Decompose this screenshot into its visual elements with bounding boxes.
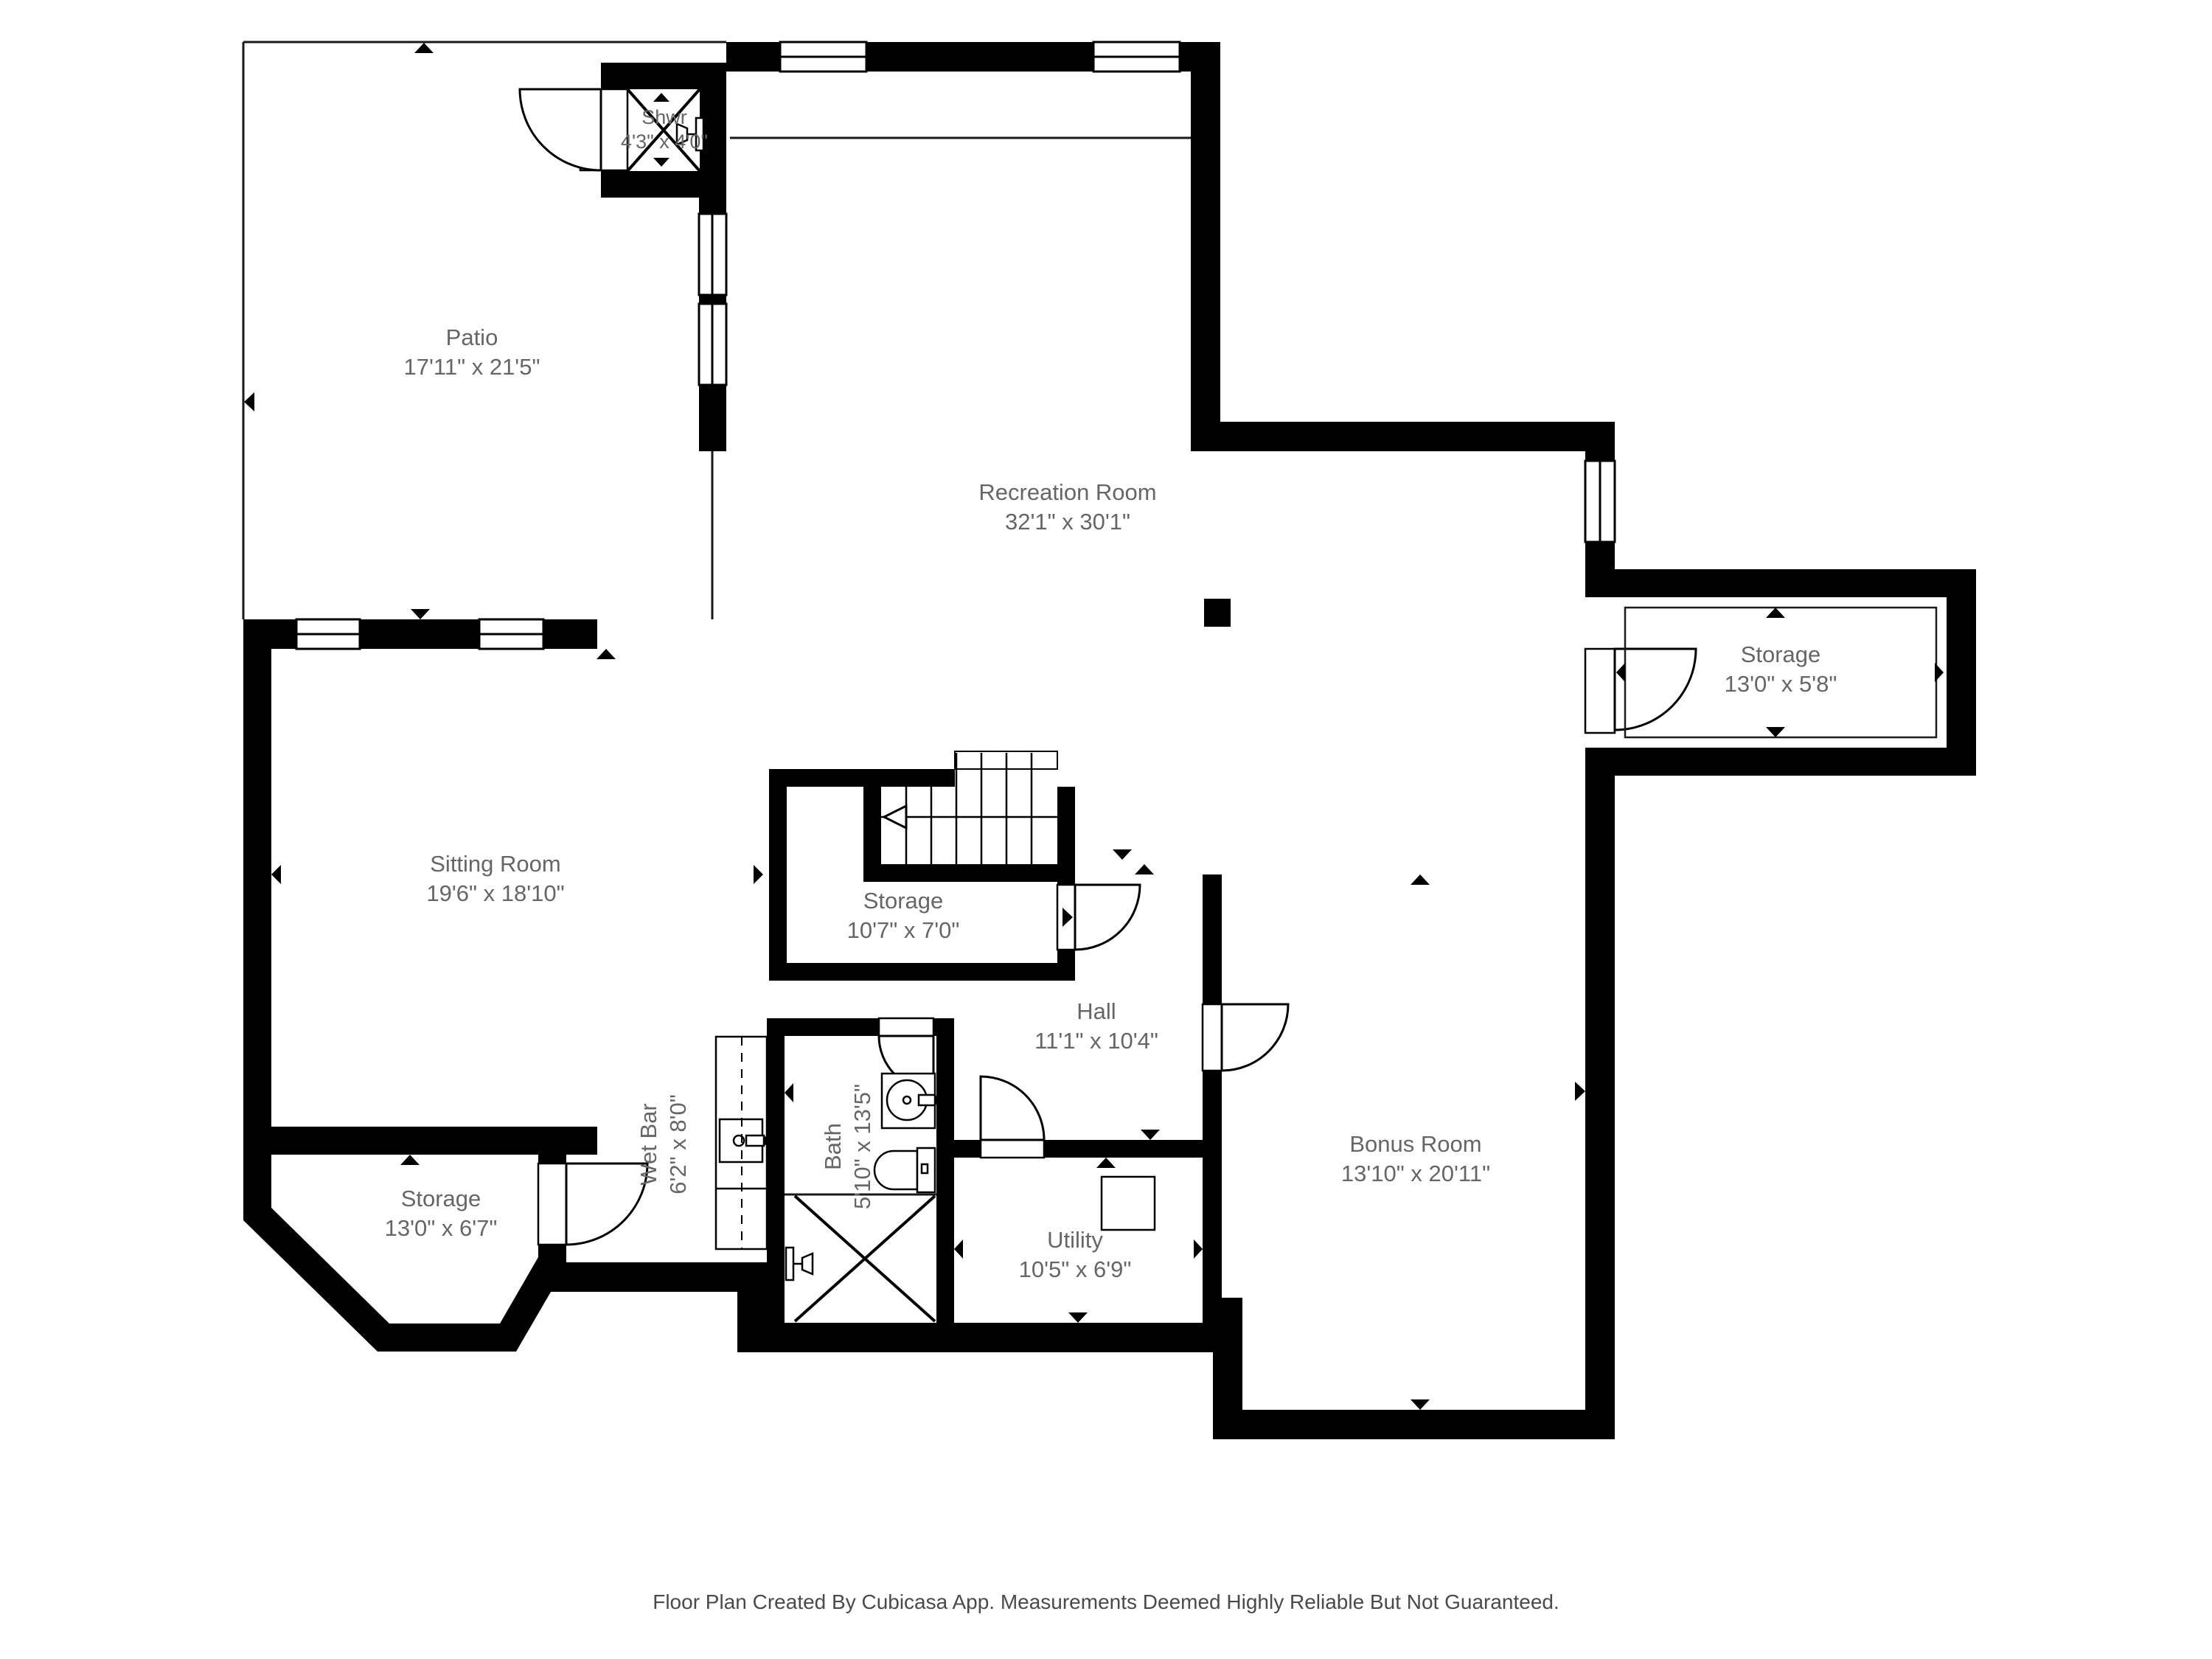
arrow-down-icon bbox=[411, 609, 430, 619]
door-bonus bbox=[1203, 1004, 1288, 1071]
wall-sitting-left bbox=[243, 619, 271, 1127]
wall-storage-mid-left bbox=[769, 769, 787, 981]
room-name: Hall bbox=[1034, 997, 1158, 1026]
room-label-patio: Patio 17'11" x 21'5" bbox=[404, 323, 540, 382]
room-dims: 4'3" x 4'0" bbox=[621, 130, 708, 154]
floor-plan: Patio 17'11" x 21'5" Shwr 4'3" x 4'0" Re… bbox=[0, 0, 2212, 1659]
wall-bonus-bottom bbox=[1213, 1410, 1615, 1439]
room-label-storage-mid: Storage 10'7" x 7'0" bbox=[847, 886, 960, 945]
room-label-storage-left: Storage 13'0" x 6'7" bbox=[385, 1184, 498, 1243]
room-name: Sitting Room bbox=[426, 849, 564, 879]
wall-bath-left bbox=[767, 1018, 785, 1323]
wall-storage-mid-top bbox=[769, 769, 955, 787]
doors bbox=[520, 89, 1696, 1245]
room-dims: 6'2" x 8'0" bbox=[664, 1094, 693, 1194]
wall-right-lower bbox=[1585, 776, 1615, 1439]
arrow-up-icon bbox=[1766, 608, 1785, 618]
wall-upper-right bbox=[1191, 422, 1615, 451]
arrow-up-icon bbox=[653, 93, 669, 102]
room-name: Recreation Room bbox=[978, 478, 1156, 507]
shower-head-bath-icon bbox=[786, 1248, 813, 1280]
wall-wetbar-bottom bbox=[538, 1262, 785, 1292]
room-dims: 32'1" x 30'1" bbox=[978, 507, 1156, 537]
window-rec-top-2 bbox=[1093, 42, 1180, 72]
arrow-left-icon bbox=[271, 865, 281, 884]
room-label-sitting: Sitting Room 19'6" x 18'10" bbox=[426, 849, 564, 908]
bath-shower-x-icon bbox=[795, 1196, 935, 1321]
arrow-down-icon bbox=[1141, 1130, 1160, 1140]
room-name: Utility bbox=[1019, 1225, 1132, 1255]
wall-storage-right-right bbox=[1947, 569, 1976, 776]
arrow-right-icon bbox=[1194, 1239, 1203, 1259]
room-dims: 10'7" x 7'0" bbox=[847, 916, 960, 945]
arrow-left-icon bbox=[954, 1239, 963, 1259]
room-dims: 19'6" x 18'10" bbox=[426, 879, 564, 908]
room-name: Shwr bbox=[621, 105, 708, 130]
wall-hall-bonus bbox=[1203, 874, 1222, 1326]
room-label-recreation: Recreation Room 32'1" x 30'1" bbox=[978, 478, 1156, 537]
column bbox=[1204, 599, 1231, 627]
window-right-wall bbox=[1585, 461, 1615, 542]
arrow-up-icon bbox=[1411, 874, 1430, 885]
arrow-down-icon bbox=[1766, 727, 1785, 737]
window-rec-top-1 bbox=[780, 42, 866, 72]
room-name: Bonus Room bbox=[1341, 1130, 1490, 1159]
window-sitting-1 bbox=[296, 619, 360, 649]
arrow-down-icon bbox=[1068, 1312, 1088, 1323]
room-name: Bath bbox=[818, 1084, 848, 1209]
room-name: Storage bbox=[385, 1184, 498, 1214]
door-utility bbox=[981, 1077, 1044, 1158]
room-dims: 13'0" x 6'7" bbox=[385, 1214, 498, 1243]
window-patio-right-1 bbox=[699, 214, 726, 295]
stairs bbox=[881, 751, 1057, 864]
wall-stair-bottom bbox=[863, 864, 1075, 882]
stair-arrow-icon bbox=[884, 806, 906, 828]
room-name: Storage bbox=[1725, 640, 1837, 669]
arrow-right-icon bbox=[1575, 1082, 1585, 1101]
wall-bath-right bbox=[936, 1018, 954, 1323]
wall-rec-right bbox=[1191, 42, 1220, 451]
arrow-up-icon bbox=[1096, 1158, 1116, 1168]
arrow-down-icon bbox=[653, 158, 669, 167]
door-wet-bar bbox=[538, 1164, 647, 1245]
room-label-shower: Shwr 4'3" x 4'0" bbox=[621, 105, 708, 154]
arrow-right-icon bbox=[1935, 663, 1944, 682]
sink-icon bbox=[882, 1074, 942, 1128]
arrow-left-icon bbox=[244, 392, 254, 411]
wall-hall-bottom bbox=[936, 1140, 1222, 1158]
water-heater-icon bbox=[1102, 1177, 1155, 1230]
door-storage-right bbox=[1585, 649, 1696, 733]
arrow-down-icon bbox=[1113, 849, 1132, 860]
room-name: Wet Bar bbox=[634, 1094, 664, 1194]
arrow-down-icon bbox=[1411, 1399, 1430, 1410]
room-label-hall: Hall 11'1" x 10'4" bbox=[1034, 997, 1158, 1056]
arrow-right-icon bbox=[754, 865, 763, 884]
wall-storage-right-top bbox=[1585, 569, 1976, 597]
room-dims: 13'10" x 20'11" bbox=[1341, 1159, 1490, 1189]
toilet-icon bbox=[874, 1148, 935, 1192]
room-dims: 5'10" x 13'5" bbox=[848, 1084, 877, 1209]
footer-disclaimer: Floor Plan Created By Cubicasa App. Meas… bbox=[653, 1590, 1559, 1614]
room-label-wet-bar: Wet Bar 6'2" x 8'0" bbox=[634, 1094, 693, 1194]
wall-storage-left-top-stub bbox=[566, 1127, 597, 1155]
room-dims: 13'0" x 5'8" bbox=[1725, 669, 1837, 699]
arrow-up-icon bbox=[414, 43, 434, 53]
floor-plan-drawing bbox=[0, 0, 2212, 1659]
window-sitting-2 bbox=[479, 619, 543, 649]
door-shower-top bbox=[520, 89, 627, 170]
room-dims: 11'1" x 10'4" bbox=[1034, 1026, 1158, 1056]
room-label-utility: Utility 10'5" x 6'9" bbox=[1019, 1225, 1132, 1284]
wall-storage-right-bottom bbox=[1585, 748, 1976, 776]
room-dims: 17'11" x 21'5" bbox=[404, 352, 540, 382]
room-label-bath: Bath 5'10" x 13'5" bbox=[818, 1084, 877, 1209]
arrow-left-icon bbox=[785, 1083, 793, 1102]
window-patio-right-2 bbox=[699, 304, 726, 385]
room-label-bonus: Bonus Room 13'10" x 20'11" bbox=[1341, 1130, 1490, 1189]
wet-bar-counter bbox=[716, 1037, 773, 1249]
room-name: Patio bbox=[404, 323, 540, 352]
room-label-storage-right: Storage 13'0" x 5'8" bbox=[1725, 640, 1837, 699]
arrow-up-icon bbox=[597, 649, 616, 659]
room-name: Storage bbox=[847, 886, 960, 916]
wall-storage-mid-bottom bbox=[769, 963, 1075, 981]
arrow-up-icon bbox=[1135, 864, 1154, 874]
room-dims: 10'5" x 6'9" bbox=[1019, 1255, 1132, 1284]
wall-utility-bottom bbox=[756, 1323, 1242, 1352]
